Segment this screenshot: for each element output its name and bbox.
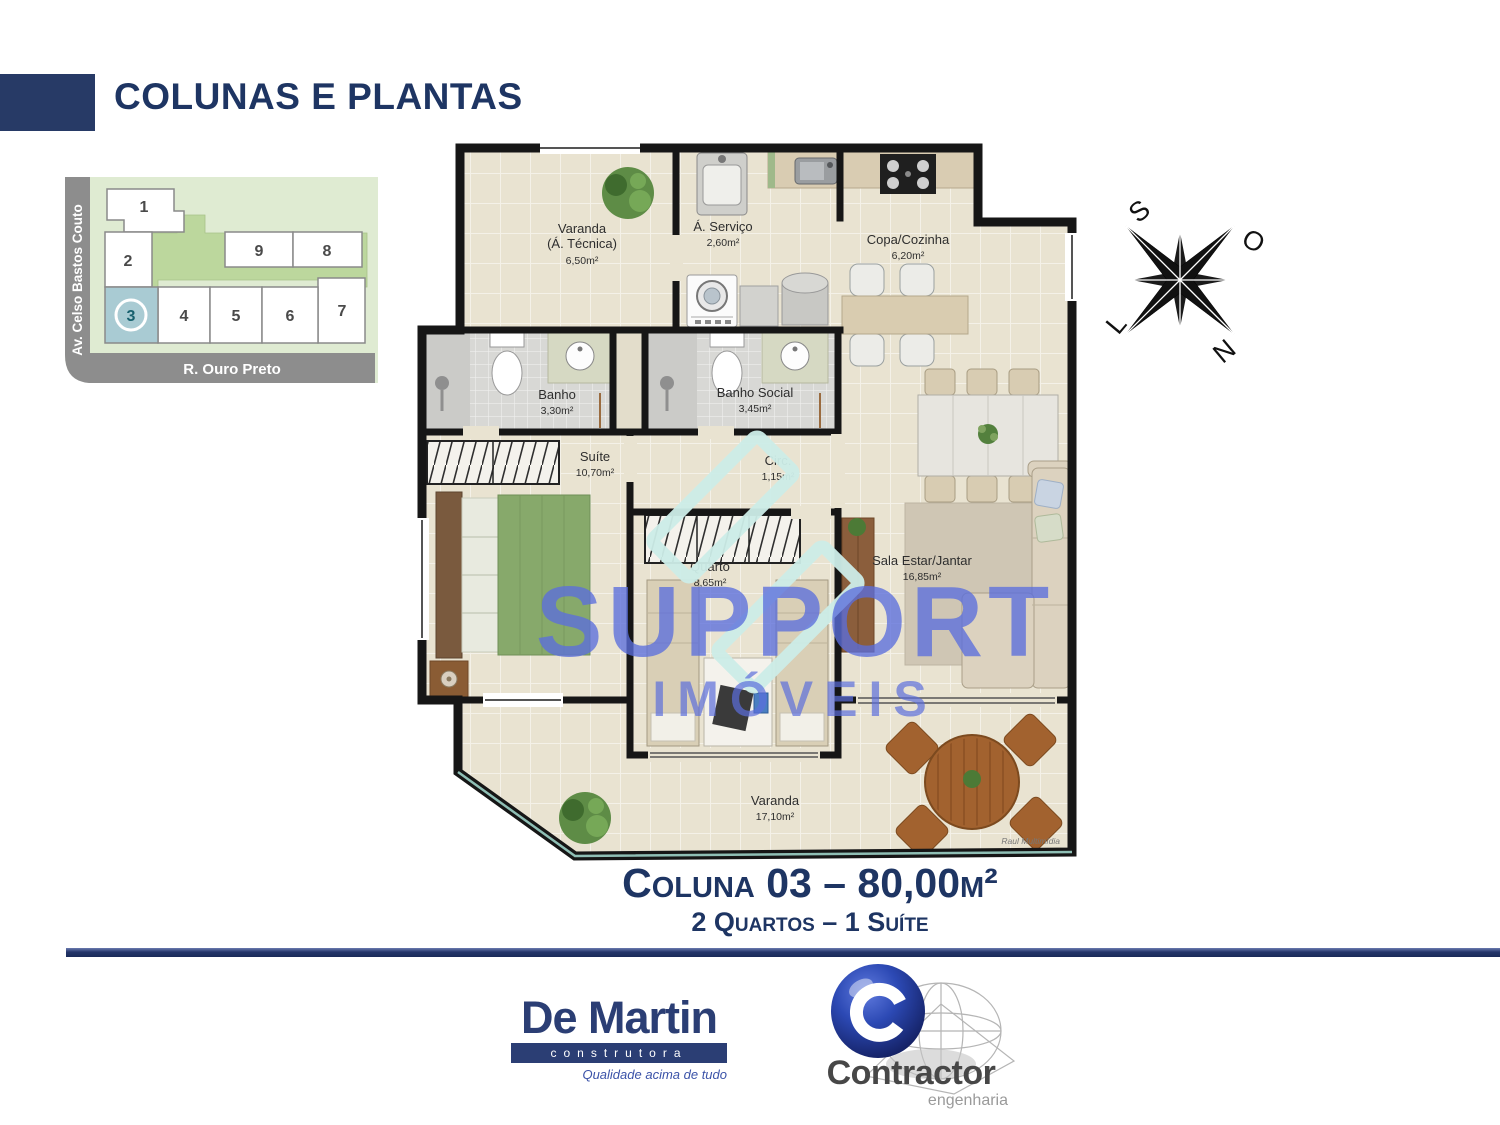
- street-name-bottom: R. Ouro Preto: [183, 361, 281, 378]
- unit-2-number: 2: [124, 253, 133, 270]
- room-label-banho-social: Banho Social: [717, 385, 794, 400]
- unit-6-number: 6: [286, 308, 295, 325]
- room-label-varanda-tecnica-2: (Á. Técnica): [547, 236, 617, 251]
- demartin-name: De Martin: [511, 995, 727, 1040]
- room-label-varanda-tecnica: Varanda: [558, 221, 607, 236]
- plant-varanda-tecnica: [602, 167, 654, 219]
- unit-1-number: 1: [140, 199, 149, 216]
- unit-5-number: 5: [232, 308, 241, 325]
- service-cabinet: [740, 286, 778, 326]
- shower-head: [660, 376, 674, 390]
- room-label-varanda: Varanda: [751, 793, 800, 808]
- room-label-servico: Á. Serviço: [693, 219, 752, 234]
- compass-label-n: N: [1207, 333, 1241, 369]
- sofa-pillow: [1034, 513, 1063, 542]
- compass-rose: S O L N: [1095, 182, 1280, 377]
- kitchen-counter: [768, 152, 976, 194]
- room-area-varanda-tecnica: 6,50m²: [566, 255, 599, 267]
- compass-label-l: L: [1100, 309, 1133, 340]
- site-location-map: 1 2 3 4 5 6 7 8 9 R. Ouro Preto Av. Cels…: [62, 175, 380, 385]
- room-area-varanda: 17,10m²: [756, 811, 795, 823]
- room-area-sala: 16,85m²: [903, 571, 942, 583]
- plant-balcony: [559, 792, 611, 844]
- compass-label-s: S: [1123, 194, 1156, 229]
- sofa-pillow: [1034, 479, 1064, 509]
- artist-signature: Raul Multimídia: [1001, 836, 1060, 846]
- room-area-copa: 6,20m²: [892, 250, 925, 262]
- balcony-table-plant: [963, 770, 981, 788]
- room-area-banho: 3,30m²: [541, 405, 574, 417]
- contractor-logo: Contractor engenharia: [806, 956, 1016, 1124]
- blue-sphere: [831, 964, 925, 1058]
- contractor-name: Contractor: [806, 1054, 1016, 1093]
- shower-head: [435, 376, 449, 390]
- bathroom-sink: [781, 342, 809, 370]
- caption-rooms: 2 Quartos – 1 Suíte: [450, 908, 1170, 938]
- unit-9-number: 9: [255, 243, 264, 260]
- room-area-servico: 2,60m²: [707, 237, 740, 249]
- laundry-tub: [697, 153, 747, 215]
- demartin-tagline: Qualidade acima de tudo: [511, 1067, 727, 1082]
- contractor-subtitle: engenharia: [928, 1092, 1008, 1110]
- caption-column-area: Coluna 03 – 80,00m²: [450, 861, 1170, 906]
- unit-8-number: 8: [323, 243, 332, 260]
- page-title: COLUNAS E PLANTAS: [114, 76, 523, 118]
- header-accent-block: [0, 74, 95, 131]
- unit-7-number: 7: [338, 303, 347, 320]
- room-label-banho: Banho: [538, 387, 576, 402]
- washing-machine: [687, 275, 737, 327]
- room-area-suite: 10,70m²: [576, 467, 615, 479]
- toilet: [492, 351, 522, 395]
- unit-3-number: 3: [127, 308, 136, 325]
- street-name-left: Av. Celso Bastos Couto: [70, 204, 85, 356]
- suite-bed: [436, 492, 590, 658]
- unit-4-number: 4: [180, 308, 189, 325]
- room-label-sala: Sala Estar/Jantar: [872, 553, 972, 568]
- plan-caption: Coluna 03 – 80,00m² 2 Quartos – 1 Suíte: [450, 861, 1170, 938]
- water-heater: [782, 273, 828, 325]
- room-label-copa: Copa/Cozinha: [867, 232, 950, 247]
- demartin-logo: De Martin construtora Qualidade acima de…: [511, 995, 727, 1082]
- room-label-suite: Suíte: [580, 449, 610, 464]
- support-logo-icon: [628, 412, 883, 712]
- suite-nightstand: [430, 661, 468, 697]
- footer-divider: [66, 948, 1500, 957]
- slide: COLUNAS E PLANTAS 1 2 3 4 5 6 7 8 9: [0, 0, 1500, 1125]
- demartin-subtitle-bar: construtora: [511, 1043, 727, 1063]
- compass-star: [1126, 226, 1234, 334]
- compass-label-o: O: [1237, 223, 1270, 259]
- bathroom-sink: [566, 342, 594, 370]
